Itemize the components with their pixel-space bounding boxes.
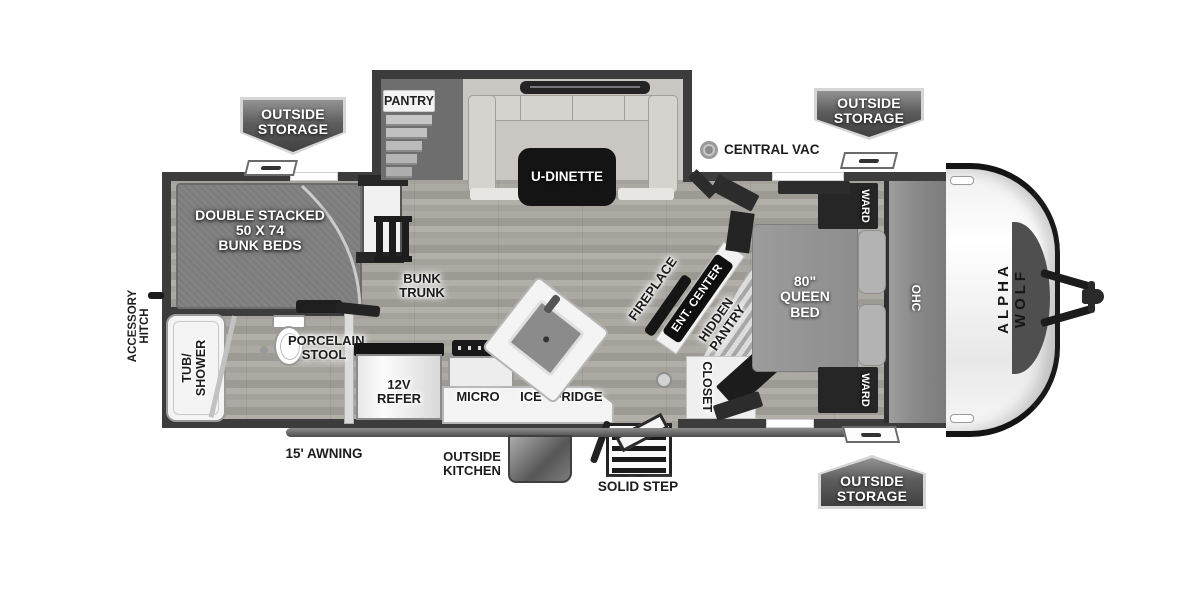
pantry-stair-tread <box>386 167 412 178</box>
badge-line2: STORAGE <box>837 489 907 504</box>
bunk-beds-line2: 50 X 74 <box>190 223 330 238</box>
pantry-stair-tread <box>386 115 432 126</box>
hitch-coupler <box>1082 289 1104 304</box>
accessory-hitch-label: ACCESSORY HITCH <box>127 286 157 366</box>
bed-line2: QUEEN <box>760 289 850 304</box>
pantry-stair-tread <box>386 141 422 152</box>
pillow-bottom <box>858 304 886 366</box>
badge-face: OUTSIDE STORAGE <box>243 100 343 152</box>
dinette-left-cushion <box>468 95 496 193</box>
badge-face: OUTSIDE STORAGE <box>821 458 923 506</box>
ladder-rung <box>389 222 396 256</box>
solid-step-label: SOLID STEP <box>594 480 682 495</box>
baggage-door-handle <box>861 433 882 437</box>
window-bedroom-top <box>772 172 844 181</box>
floor-vent <box>656 372 672 388</box>
micro-label: MICRO <box>452 390 504 404</box>
solid-step-text: SOLID STEP <box>598 479 678 494</box>
bunk-trunk-label: BUNK TRUNK <box>390 272 454 300</box>
ladder-rung <box>402 222 409 256</box>
badge-outside-storage-top-left: OUTSIDE STORAGE <box>240 97 346 155</box>
accessory-hitch-line2: HITCH <box>139 286 151 366</box>
u-dinette-table: U-DINETTE <box>518 148 616 206</box>
ohc-label: OHC <box>908 278 922 318</box>
ladder-rung <box>376 222 383 256</box>
badge-outside-storage-top-right: OUTSIDE STORAGE <box>814 88 924 140</box>
ac-vent <box>520 81 650 94</box>
badge-face: OUTSIDE STORAGE <box>817 91 921 137</box>
dinette-seat-front-right <box>618 188 674 200</box>
queen-bed-label: 80" QUEEN BED <box>760 274 850 320</box>
wall-slideout-left <box>372 70 381 182</box>
bunk-beds-line1: DOUBLE STACKED <box>190 208 330 223</box>
baggage-door-handle <box>261 166 282 170</box>
u-dinette-label: U-DINETTE <box>531 170 603 185</box>
tub-line2: SHOWER <box>195 318 209 418</box>
ohc-strip-top <box>778 181 850 194</box>
window-bedroom-bottom <box>766 419 814 428</box>
baggage-door-front-top <box>840 152 898 169</box>
baggage-door-front-bottom <box>842 426 900 443</box>
ac-vent-line <box>530 86 640 88</box>
outside-kitchen-line2: KITCHEN <box>438 464 506 478</box>
wall-bathroom-right <box>344 312 354 424</box>
outside-kitchen-panel <box>508 435 572 483</box>
pantry-label: PANTRY <box>384 94 434 108</box>
bunk-trunk-line1: BUNK <box>390 272 454 286</box>
ward-top-label: WARD <box>857 186 871 226</box>
bunk-trunk-line2: TRUNK <box>390 286 454 300</box>
floorplan: DOUBLE STACKED 50 X 74 BUNK BEDS BUNK TR… <box>0 0 1200 600</box>
cap-latch-bottom <box>950 414 974 423</box>
bed-line3: BED <box>760 305 850 320</box>
tub-line1: TUB/ <box>181 318 195 418</box>
step-tread <box>612 468 666 473</box>
central-vac-label: CENTRAL VAC <box>724 142 820 157</box>
baggage-door-handle <box>859 159 880 163</box>
porcelain-stool-label: PORCELAIN STOOL <box>288 334 360 362</box>
toilet-line2: STOOL <box>288 348 360 362</box>
step-tread <box>612 457 666 462</box>
badge-top-left-text: OUTSIDE STORAGE <box>258 107 328 138</box>
central-vac-text: CENTRAL VAC <box>724 142 820 157</box>
closet-text: CLOSET <box>700 361 714 412</box>
pantry-stair-tread <box>386 128 427 139</box>
accessory-hitch-line1: ACCESSORY <box>127 286 139 366</box>
ward-top-text: WARD <box>859 189 871 223</box>
ward-bottom-text: WARD <box>859 373 871 407</box>
bunk-beds-line3: BUNK BEDS <box>190 238 330 253</box>
awning-text: 15' AWNING <box>286 446 363 461</box>
tub-shower-label: TUB/ SHOWER <box>181 318 211 418</box>
badge-bottom-right-text: OUTSIDE STORAGE <box>837 474 907 505</box>
badge-line2: STORAGE <box>834 111 904 126</box>
shower-knob <box>260 346 268 354</box>
badge-top-right-text: OUTSIDE STORAGE <box>834 96 904 127</box>
wall-slideout-top <box>372 70 692 79</box>
refer-line1: 12V <box>368 378 430 392</box>
ladder-icon <box>374 216 412 262</box>
pantry-label-box: PANTRY <box>383 90 435 112</box>
bunk-beds-label: DOUBLE STACKED 50 X 74 BUNK BEDS <box>190 208 330 253</box>
outside-kitchen-label: OUTSIDE KITCHEN <box>438 450 506 478</box>
toilet-line1: PORCELAIN <box>288 334 360 348</box>
baggage-door-rear <box>244 160 298 176</box>
cap-latch-top <box>950 176 974 185</box>
pantry-stair-tread <box>386 154 417 165</box>
wall-slideout-right <box>683 70 692 182</box>
badge-outside-storage-bottom-right: OUTSIDE STORAGE <box>818 455 926 509</box>
outside-kitchen-line1: OUTSIDE <box>438 450 506 464</box>
badge-line2: STORAGE <box>258 122 328 137</box>
central-vac-icon <box>700 141 718 159</box>
pillow-top <box>858 230 886 294</box>
micro-text: MICRO <box>456 389 499 404</box>
closet-label: CLOSET <box>699 349 713 425</box>
ohc-text: OHC <box>909 285 923 312</box>
sink-drain <box>542 335 550 343</box>
refer-line2: REFER <box>368 392 430 406</box>
dinette-right-cushion <box>648 95 678 193</box>
brand-text: ALPHA WOLF <box>995 262 1029 334</box>
window-bunk-room <box>290 172 338 181</box>
ward-bottom-label: WARD <box>857 370 871 410</box>
alpha-wolf-logo: ALPHA WOLF <box>995 233 1011 363</box>
refer-label: 12V REFER <box>368 378 430 406</box>
dinette-back-cushion <box>468 95 678 121</box>
awning-label: 15' AWNING <box>278 447 370 462</box>
central-vac-icon-inner <box>705 146 713 154</box>
